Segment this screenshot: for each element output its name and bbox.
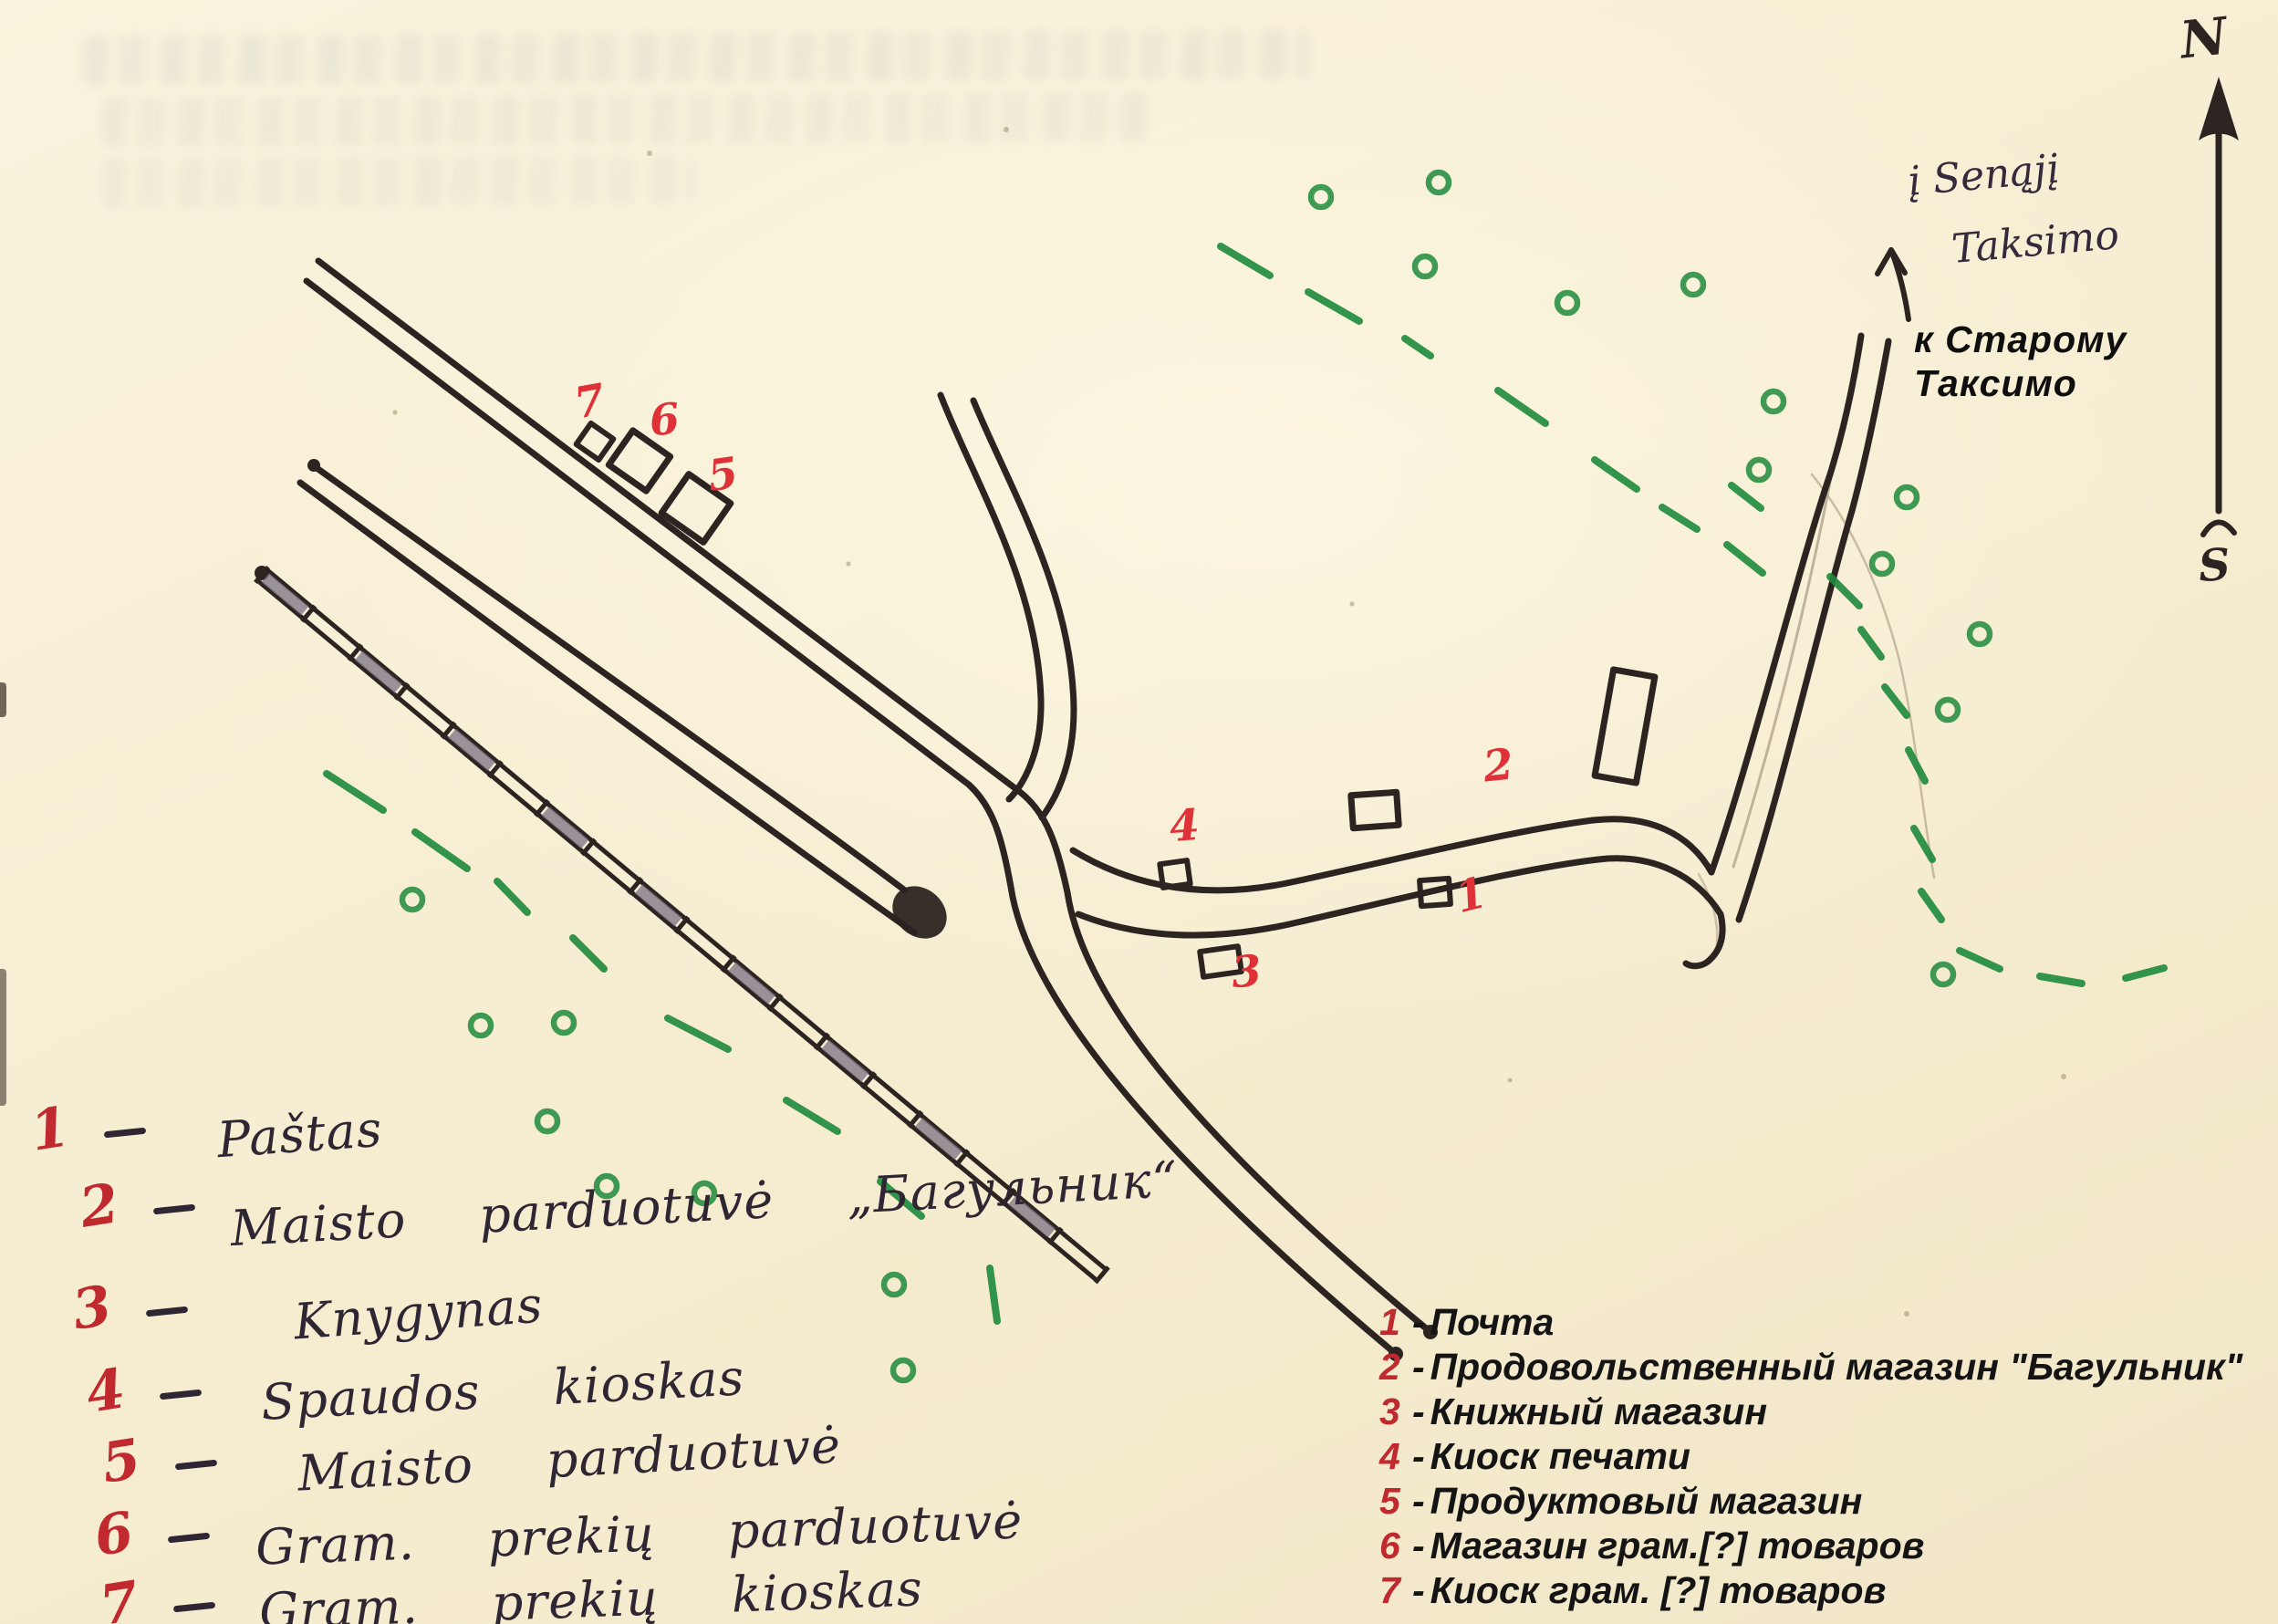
legend-left-number-2: 2 <box>77 1176 123 1236</box>
vegetation-dash <box>1960 951 2000 969</box>
pencil-curve-east-of-road <box>1812 474 1934 878</box>
vegetation-dash <box>1405 338 1430 356</box>
legend-right-text-6: Магазин грам.[?] товаров <box>1430 1525 1925 1567</box>
legend-right-typed: 1-Почта2-Продовольственный магазин "Багу… <box>1379 1303 2242 1609</box>
legend-right-text-3: Книжный магазин <box>1430 1390 1767 1432</box>
legend-right-separator: - <box>1407 1480 1430 1522</box>
vegetation-circle <box>1933 964 1953 984</box>
compass-south-label: S <box>2197 543 2231 588</box>
building-4 <box>1160 860 1190 888</box>
vegetation-circle <box>893 1360 913 1380</box>
vegetation-dash <box>668 1018 728 1049</box>
legend-right-text-5: Продуктовый магазин <box>1430 1480 1863 1522</box>
vegetation-dash <box>1221 246 1270 276</box>
legend-right-row-5: 5-Продуктовый магазин <box>1379 1482 2242 1520</box>
buildings <box>577 423 1655 977</box>
vegetation-circle <box>1683 275 1703 295</box>
direction-arrow <box>1878 250 1909 319</box>
legend-right-text-7: Киоск грам. [?] товаров <box>1430 1569 1887 1611</box>
north-branch-left-line <box>941 395 1041 799</box>
legend-right-separator: - <box>1407 1346 1430 1388</box>
vegetation-circle <box>1749 460 1769 480</box>
vegetation-circle <box>402 890 422 910</box>
legend-right-row-6: 6-Магазин грам.[?] товаров <box>1379 1526 2242 1565</box>
vegetation-dash <box>327 774 383 810</box>
legend-right-text-2: Продовольственный магазин "Багульник" <box>1430 1346 2243 1388</box>
typed-destination-line1: к Старому <box>1914 318 2127 361</box>
typed-destination-line2: Таксимо <box>1914 361 2127 405</box>
compass-needle <box>2199 77 2239 535</box>
typed-destination-label: к Старому Таксимо <box>1914 318 2127 405</box>
vegetation-dash <box>1727 545 1763 573</box>
legend-right-text-4: Киоск печати <box>1430 1435 1690 1477</box>
map-marker-5: 5 <box>705 452 741 498</box>
building-unlabeled-long <box>1595 670 1655 783</box>
map-marker-4: 4 <box>1168 804 1201 848</box>
vegetation-dash <box>415 832 467 869</box>
vegetation-dash <box>1498 390 1545 423</box>
vegetation-dash <box>1861 630 1881 657</box>
vegetation-dash <box>1830 577 1859 606</box>
legend-right-separator: - <box>1407 1390 1430 1432</box>
map-marker-6: 6 <box>648 398 681 443</box>
taksimo-road-west-line <box>1711 336 1861 872</box>
vegetation-circle <box>1970 624 1990 644</box>
vegetation-circle <box>1763 391 1784 411</box>
vegetation-dash <box>990 1268 997 1321</box>
legend-right-number-2: 2 <box>1379 1348 1407 1386</box>
scanned-map-page: 1234567 į Senąjį Taksimo к Старому Такси… <box>0 0 2278 1624</box>
legend-right-row-2: 2-Продовольственный магазин "Багульник" <box>1379 1348 2242 1386</box>
vegetation-dash <box>1732 485 1761 508</box>
legend-right-number-3: 3 <box>1379 1392 1407 1431</box>
legend-right-separator: - <box>1407 1301 1430 1343</box>
compass-north-label: N <box>2178 10 2230 66</box>
parallel-street-lower-line <box>300 483 914 932</box>
building-2 <box>1351 792 1399 828</box>
compass-south-chevron-icon <box>2203 522 2234 535</box>
east-street-lower-line <box>1078 859 1722 966</box>
vegetation-circle <box>1311 187 1331 207</box>
vegetation-circle <box>884 1275 904 1295</box>
map-marker-3: 3 <box>1230 950 1264 995</box>
legend-right-row-4: 4-Киоск печати <box>1379 1437 2242 1475</box>
vegetation-dash <box>2040 976 2082 984</box>
legend-right-row-3: 3-Книжный магазин <box>1379 1392 2242 1431</box>
legend-right-separator: - <box>1407 1525 1430 1567</box>
north-branch-right-line <box>973 401 1074 817</box>
legend-right-number-6: 6 <box>1379 1526 1407 1565</box>
vegetation-circle <box>554 1013 574 1033</box>
railway-rung <box>1096 1267 1108 1283</box>
legend-right-row-7: 7-Киоск грам. [?] товаров <box>1379 1571 2242 1609</box>
vegetation-dash <box>1921 891 1941 920</box>
parallel-street-upper-line <box>313 465 905 890</box>
compass-arrowhead-north-icon <box>2199 77 2239 141</box>
road-start-dot <box>307 459 320 472</box>
paper-specks <box>393 127 2067 1317</box>
junction-ink-blob <box>882 876 957 950</box>
vegetation-dash <box>573 938 604 969</box>
vegetation-dash <box>1885 687 1907 715</box>
legend-right-separator: - <box>1407 1569 1430 1611</box>
vegetation-dash <box>497 881 527 912</box>
vegetation-circle <box>1429 172 1449 193</box>
vegetation-dash <box>1308 292 1359 321</box>
map-marker-2: 2 <box>1482 743 1515 788</box>
vegetation-dash <box>786 1100 837 1131</box>
legend-right-number-1: 1 <box>1379 1303 1407 1341</box>
legend-left-text-1: Paštas <box>215 1104 384 1167</box>
vegetation-circle <box>1557 293 1577 313</box>
legend-right-number-4: 4 <box>1379 1437 1407 1475</box>
vegetation-circle <box>1938 700 1958 720</box>
legend-right-separator: - <box>1407 1435 1430 1477</box>
east-street-upper-line <box>1073 819 1711 890</box>
vegetation-dash <box>1662 507 1697 529</box>
legend-right-number-7: 7 <box>1379 1571 1407 1609</box>
vegetation-circle <box>471 1015 491 1036</box>
vegetation-circle <box>1897 487 1917 507</box>
legend-right-row-1: 1-Почта <box>1379 1303 2242 1341</box>
vegetation-dash <box>2126 968 2164 978</box>
legend-right-text-1: Почта <box>1430 1301 1555 1343</box>
vegetation-circle <box>1872 554 1892 574</box>
legend-right-number-5: 5 <box>1379 1482 1407 1520</box>
vegetation-circle <box>1415 256 1435 276</box>
vegetation-dash <box>1595 460 1637 489</box>
handwritten-destination-label: į Senąjį Taksimo <box>1906 144 2120 273</box>
vegetation-circle <box>537 1111 557 1131</box>
